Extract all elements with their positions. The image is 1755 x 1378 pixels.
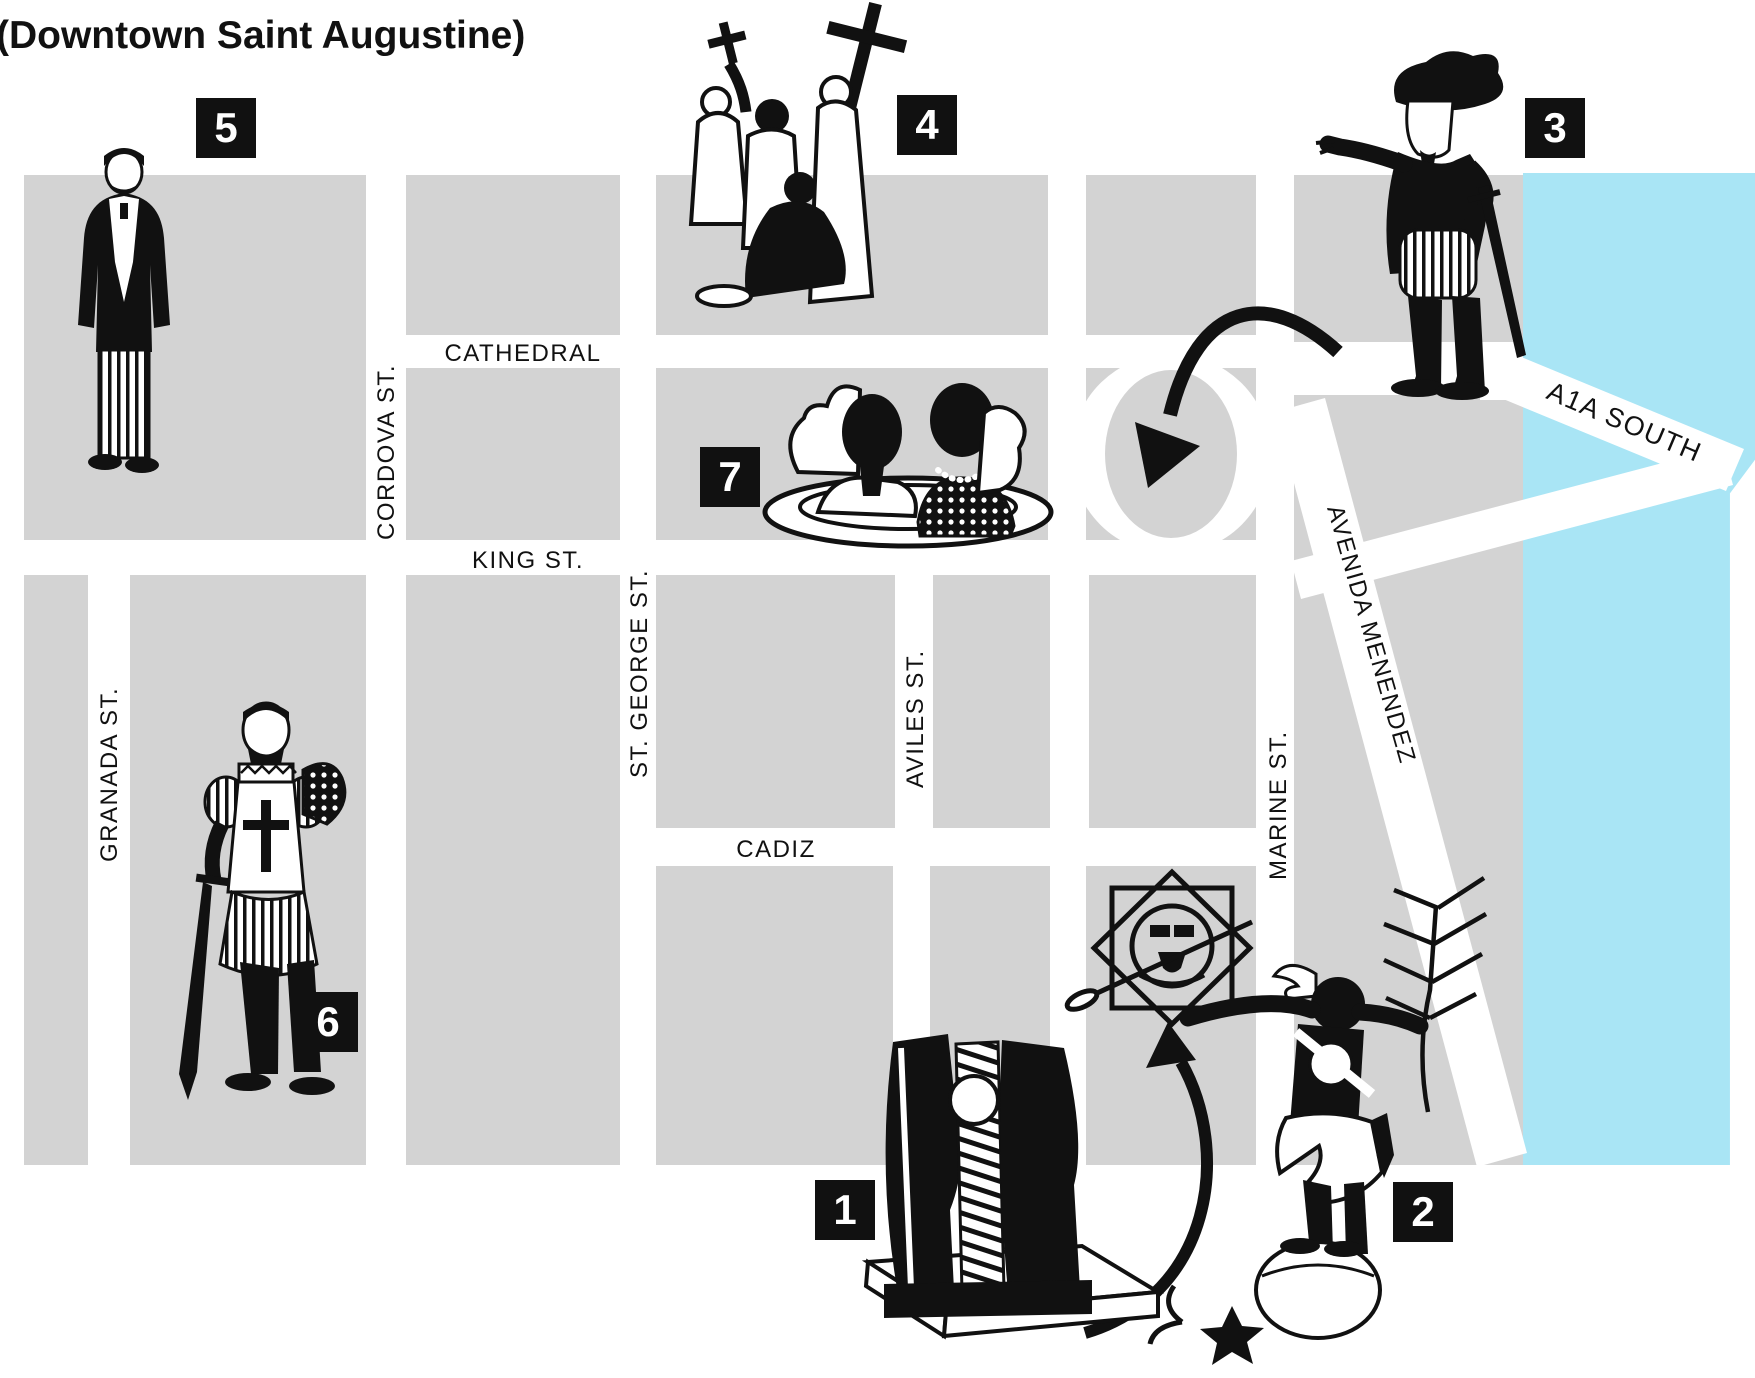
downtown-map: (Downtown Saint Augustine) bbox=[0, 0, 1755, 1378]
street-label-cadiz: CADIZ bbox=[736, 836, 816, 863]
map-overlay: CATHEDRAL KING ST. CADIZ GRANADA ST. COR… bbox=[0, 0, 1755, 1378]
marker-6: 6 bbox=[298, 992, 358, 1052]
marker-5-number: 5 bbox=[214, 104, 237, 152]
busts-platter-icon bbox=[765, 383, 1051, 546]
gentleman-statue-icon bbox=[78, 148, 170, 473]
marker-2-number: 2 bbox=[1411, 1188, 1434, 1236]
marker-1-number: 1 bbox=[833, 1186, 856, 1234]
street-label-granada: GRANADA ST. bbox=[96, 687, 123, 862]
marker-7: 7 bbox=[700, 447, 760, 507]
marker-4-number: 4 bbox=[915, 101, 938, 149]
marker-3-number: 3 bbox=[1543, 104, 1566, 152]
street-label-st-george: ST. GEORGE ST. bbox=[626, 569, 653, 778]
street-label-king: KING ST. bbox=[472, 547, 584, 574]
marker-6-number: 6 bbox=[316, 998, 339, 1046]
marker-1: 1 bbox=[815, 1180, 875, 1240]
marker-7-number: 7 bbox=[718, 453, 741, 501]
abstract-monument-icon bbox=[866, 1034, 1158, 1336]
marker-5: 5 bbox=[196, 98, 256, 158]
marker-2: 2 bbox=[1393, 1182, 1453, 1242]
street-label-cathedral: CATHEDRAL bbox=[444, 340, 601, 367]
street-label-marine: MARINE ST. bbox=[1265, 730, 1292, 880]
marker-4: 4 bbox=[897, 95, 957, 155]
street-label-cordova: CORDOVA ST. bbox=[373, 364, 400, 540]
marker-3: 3 bbox=[1525, 98, 1585, 158]
religious-group-statue-icon bbox=[691, 0, 914, 306]
street-label-aviles: AVILES ST. bbox=[902, 649, 929, 788]
